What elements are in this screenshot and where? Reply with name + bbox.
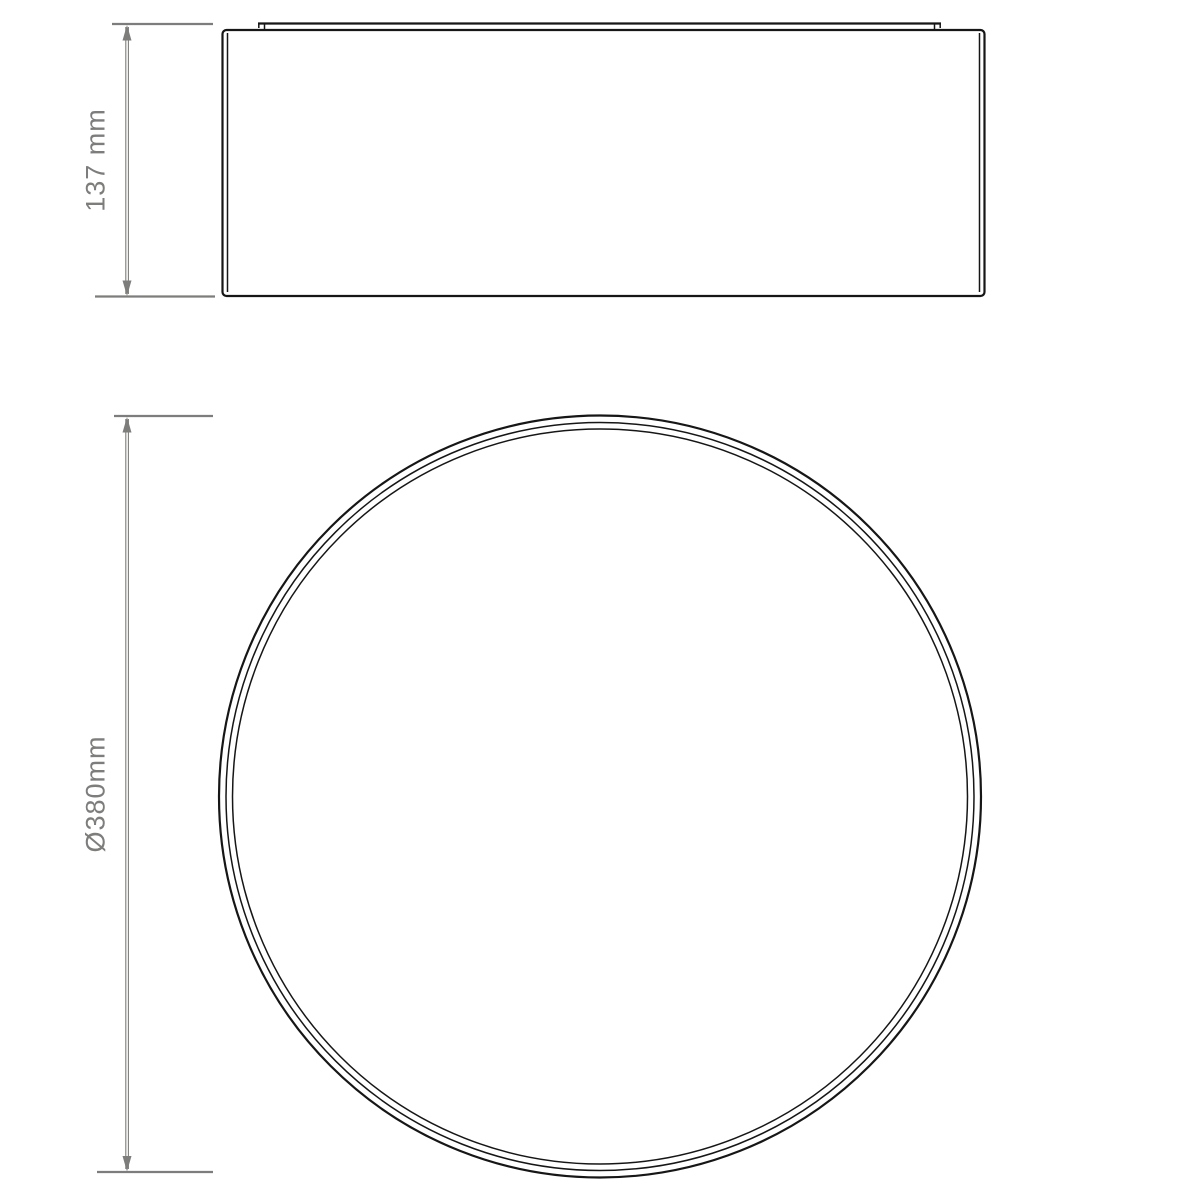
height-dimension bbox=[95, 24, 215, 297]
arrow-up-icon bbox=[123, 417, 132, 433]
height-dimension-line bbox=[126, 27, 129, 294]
outer-circle bbox=[219, 416, 981, 1178]
side-view-drawing bbox=[223, 24, 985, 297]
plan-view-drawing bbox=[219, 416, 981, 1178]
arrow-down-icon bbox=[123, 281, 132, 297]
inner-circle bbox=[233, 429, 968, 1164]
technical-drawing-canvas: 137 mm Ø380mm bbox=[0, 0, 1200, 1200]
diameter-dimension bbox=[97, 416, 213, 1172]
body-outline bbox=[223, 30, 985, 296]
arrow-down-icon bbox=[123, 1156, 132, 1172]
diameter-dimension-line bbox=[126, 419, 129, 1169]
drawing-svg bbox=[0, 0, 1200, 1200]
middle-circle bbox=[226, 423, 974, 1171]
height-dimension-label: 137 mm bbox=[81, 108, 112, 212]
arrow-up-icon bbox=[123, 25, 132, 41]
diameter-dimension-label: Ø380mm bbox=[81, 735, 112, 852]
